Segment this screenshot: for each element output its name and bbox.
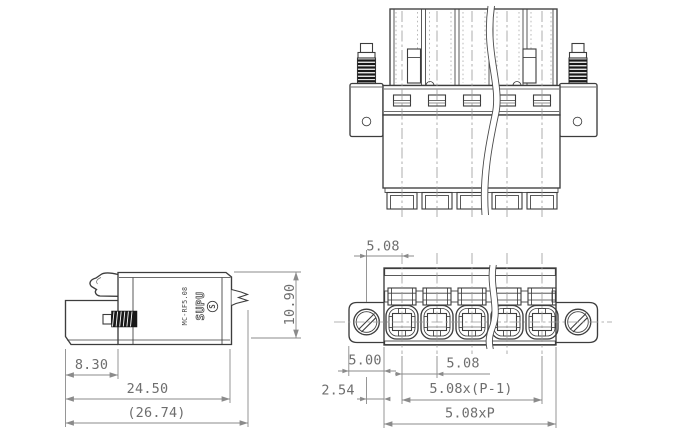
screw-thread-lines <box>569 61 587 82</box>
front-left-flange <box>350 44 383 137</box>
screw-head <box>361 44 373 53</box>
dim-side-wire-width: 8.30 <box>75 357 108 373</box>
clamp-screw-tip <box>103 315 112 325</box>
dim-screw-to-pole: 5.08 <box>366 239 399 255</box>
front-view <box>350 6 597 220</box>
dim-flange-edge: 5.00 <box>348 353 381 369</box>
side-latch <box>90 273 118 296</box>
manufacturer-label: SUPU <box>194 292 207 321</box>
dim-pitch: 5.08 <box>446 356 479 372</box>
screw-head <box>572 44 584 53</box>
terminal-block-drawing: MC-RF5.08 SUPU S 8.30 24.50 (26.74) 10.9… <box>0 0 680 440</box>
front-right-flange <box>560 44 598 137</box>
bottom-view: 5.08 5.00 2.54 5.08 5.08x(P-1) 5.08xP <box>321 239 612 429</box>
bottom-body <box>384 253 558 354</box>
dim-side-overall-width: (26.74) <box>127 405 185 421</box>
drawing-canvas: MC-RF5.08 SUPU S 8.30 24.50 (26.74) 10.9… <box>0 0 680 440</box>
front-lower-housing <box>383 115 560 209</box>
side-pin-barb <box>232 290 248 306</box>
dim-side-height: 10.90 <box>282 284 298 326</box>
seal-strip <box>385 188 558 193</box>
dim-half-pitch: 2.54 <box>321 383 354 399</box>
dim-side-body-width: 24.50 <box>127 381 169 397</box>
brand-logo-letter: S <box>208 304 217 309</box>
model-label: MC-RF5.08 <box>181 287 189 326</box>
dim-span-poles: 5.08x(P-1) <box>429 381 512 397</box>
dim-span-total: 5.08xP <box>445 406 495 422</box>
wire-plunger <box>408 49 421 83</box>
side-view: MC-RF5.08 SUPU S 8.30 24.50 (26.74) 10.9… <box>66 272 302 427</box>
front-band <box>383 86 560 116</box>
wire-plunger <box>523 49 536 83</box>
front-wire-section <box>390 9 557 86</box>
screw-thread-lines <box>358 61 376 82</box>
